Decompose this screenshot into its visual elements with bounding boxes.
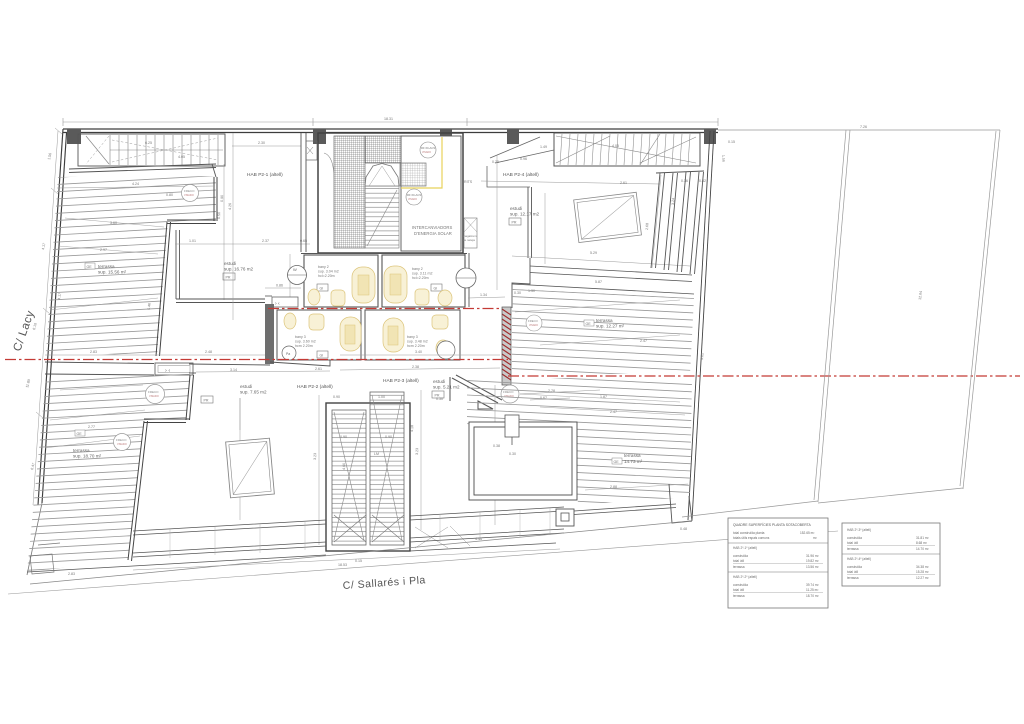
- svg-text:sup. 3.04 m2: sup. 3.04 m2: [318, 270, 339, 274]
- svg-text:2.30: 2.30: [258, 141, 265, 145]
- svg-text:terrassa: terrassa: [733, 594, 745, 598]
- svg-text:31.96 m²: 31.96 m²: [806, 554, 819, 558]
- svg-text:HAB P2-1 (altell): HAB P2-1 (altell): [247, 172, 283, 178]
- svg-text:1.49: 1.49: [540, 145, 547, 149]
- svg-text:8.68 m²: 8.68 m²: [916, 541, 927, 545]
- svg-text:0.50: 0.50: [217, 212, 221, 219]
- svg-text:15.28 m²: 15.28 m²: [916, 570, 929, 574]
- svg-text:hcl=2.20m: hcl=2.20m: [318, 274, 335, 278]
- svg-text:9.62: 9.62: [700, 353, 704, 360]
- svg-text:2.61: 2.61: [620, 181, 627, 185]
- svg-text:PR: PR: [204, 399, 209, 403]
- svg-text:GE: GE: [586, 322, 592, 326]
- svg-text:VISADO: VISADO: [149, 394, 159, 398]
- svg-text:GE: GE: [87, 265, 93, 269]
- svg-text:HAB P2-4 (altell): HAB P2-4 (altell): [503, 172, 539, 178]
- svg-text:5.87: 5.87: [595, 280, 602, 284]
- svg-text:1.00: 1.00: [378, 395, 385, 399]
- svg-text:hcl=2.20m: hcl=2.20m: [412, 276, 429, 280]
- svg-text:4.24: 4.24: [132, 182, 139, 186]
- svg-text:4.44: 4.44: [475, 537, 482, 541]
- svg-text:bany 2: bany 2: [412, 267, 423, 271]
- svg-text:terrassa: terrassa: [847, 576, 859, 580]
- svg-text:FRECO: FRECO: [528, 319, 539, 323]
- svg-text:1.01: 1.01: [189, 239, 196, 243]
- svg-text:HAB P2-2 (altell): HAB P2-2 (altell): [297, 384, 333, 390]
- svg-text:0.48: 0.48: [680, 527, 687, 531]
- svg-text:VISADO: VISADO: [529, 324, 538, 327]
- svg-text:RF 60-ACS: RF 60-ACS: [407, 193, 421, 197]
- svg-text:de neteja: de neteja: [463, 238, 475, 242]
- svg-text:3.40: 3.40: [415, 350, 422, 354]
- svg-text:PR: PR: [512, 221, 517, 225]
- svg-text:2.97: 2.97: [100, 248, 107, 252]
- svg-text:0.67: 0.67: [540, 396, 547, 400]
- svg-text:HAB 2º-2º (altell): HAB 2º-2º (altell): [733, 575, 757, 579]
- svg-text:GI: GI: [320, 287, 324, 291]
- svg-text:0.96: 0.96: [520, 157, 527, 161]
- svg-text:hcm 2.20m: hcm 2.20m: [407, 344, 425, 348]
- svg-text:34.38 m²: 34.38 m²: [916, 565, 929, 569]
- svg-text:3.60: 3.60: [110, 221, 117, 225]
- svg-text:0.15: 0.15: [355, 559, 362, 563]
- svg-text:4.18: 4.18: [410, 425, 414, 432]
- svg-text:2.37: 2.37: [262, 239, 269, 243]
- svg-text:› ‹: › ‹: [275, 301, 280, 307]
- svg-text:0.30: 0.30: [509, 452, 516, 456]
- svg-text:sup. 7.65 m2: sup. 7.65 m2: [240, 390, 267, 395]
- svg-text:HAB 2º-4º (altell): HAB 2º-4º (altell): [847, 557, 871, 561]
- svg-text:sup. 18.70 m²: sup. 18.70 m²: [73, 454, 102, 459]
- svg-text:LM: LM: [374, 452, 379, 456]
- svg-text:bany 3: bany 3: [295, 335, 306, 339]
- svg-text:2.88: 2.88: [610, 485, 617, 489]
- svg-text:VISADO: VISADO: [184, 193, 194, 197]
- svg-text:2.68: 2.68: [645, 223, 649, 230]
- svg-text:RF 60-ACS: RF 60-ACS: [421, 146, 435, 150]
- svg-text:3.23: 3.23: [415, 448, 419, 455]
- svg-text:2.47: 2.47: [610, 410, 617, 414]
- svg-text:1.87: 1.87: [600, 395, 607, 399]
- svg-text:terrassa: terrassa: [596, 318, 613, 323]
- svg-text:1.56: 1.56: [721, 155, 726, 162]
- svg-text:terrassa: terrassa: [624, 453, 641, 458]
- svg-text:4.05: 4.05: [612, 144, 619, 148]
- svg-text:GI: GI: [320, 354, 324, 358]
- svg-text:total útil: total útil: [847, 570, 858, 574]
- svg-text:152.65 m²: 152.65 m²: [800, 531, 814, 535]
- svg-text:m²: m²: [813, 536, 817, 540]
- svg-text:sup. 3.48 m2: sup. 3.48 m2: [407, 340, 428, 344]
- svg-text:construïda: construïda: [733, 583, 748, 587]
- svg-text:4.60: 4.60: [342, 463, 346, 470]
- svg-text:0.30: 0.30: [436, 397, 443, 401]
- svg-text:0.25: 0.25: [492, 160, 499, 164]
- svg-text:14.73 m²: 14.73 m²: [624, 459, 643, 464]
- svg-text:14.70 m²: 14.70 m²: [916, 547, 929, 551]
- svg-text:1.34: 1.34: [480, 293, 487, 297]
- svg-text:2.47: 2.47: [640, 339, 647, 343]
- svg-text:terrassa: terrassa: [98, 264, 115, 269]
- svg-text:estudi: estudi: [433, 379, 445, 384]
- svg-text:W: W: [293, 267, 297, 272]
- svg-text:31.81 m²: 31.81 m²: [916, 536, 929, 540]
- svg-text:11.25 m²: 11.25 m²: [806, 588, 818, 592]
- svg-text:FRECO: FRECO: [116, 438, 127, 442]
- svg-text:5.29: 5.29: [590, 251, 597, 255]
- svg-text:6.25: 6.25: [145, 141, 152, 145]
- svg-text:0.90: 0.90: [385, 435, 392, 439]
- svg-text:sup. 12.17 m2: sup. 12.17 m2: [510, 212, 540, 217]
- svg-text:estudi: estudi: [224, 261, 236, 266]
- svg-text:totals útils espais comuns: totals útils espais comuns: [733, 536, 770, 540]
- svg-text:estudi: estudi: [240, 384, 252, 389]
- svg-text:construïda: construïda: [847, 565, 862, 569]
- svg-text:0.15: 0.15: [728, 140, 735, 144]
- svg-text:18.53: 18.53: [338, 563, 347, 567]
- svg-text:13.56 m²: 13.56 m²: [806, 565, 819, 569]
- svg-text:FRECO: FRECO: [503, 390, 514, 394]
- svg-text:4.05: 4.05: [178, 155, 185, 159]
- svg-text:HAB P2-3 (altell): HAB P2-3 (altell): [383, 378, 419, 384]
- svg-text:GE: GE: [77, 432, 83, 436]
- svg-text:terrassa: terrassa: [847, 547, 859, 551]
- svg-text:0.80: 0.80: [166, 193, 173, 197]
- svg-text:GE: GE: [614, 460, 620, 464]
- svg-text:VISADO: VISADO: [117, 442, 127, 446]
- svg-text:HAB 2º-3º (altell): HAB 2º-3º (altell): [847, 528, 871, 532]
- svg-text:FRECO: FRECO: [184, 189, 195, 193]
- svg-text:1.30: 1.30: [528, 289, 535, 293]
- svg-text:hcm 2.20m: hcm 2.20m: [295, 344, 313, 348]
- svg-text:total útil: total útil: [733, 559, 744, 563]
- svg-text:total construïda planta: total construïda planta: [733, 531, 765, 535]
- svg-text:construïda: construïda: [847, 536, 862, 540]
- svg-text:sup. 5.21 m2: sup. 5.21 m2: [433, 385, 460, 390]
- svg-text:2.48: 2.48: [205, 350, 212, 354]
- svg-text:2.83: 2.83: [68, 572, 75, 576]
- svg-text:› ‹: › ‹: [165, 368, 170, 374]
- svg-text:INTERCANVIADORS: INTERCANVIADORS: [412, 225, 452, 230]
- svg-text:RITS: RITS: [464, 180, 473, 184]
- svg-text:QUADRE SUPERFÍCIES PLANTA SOTA: QUADRE SUPERFÍCIES PLANTA SOTACOBERTA: [733, 523, 811, 527]
- svg-text:HAB 2º-1º (altell): HAB 2º-1º (altell): [733, 546, 757, 550]
- svg-text:0.90: 0.90: [340, 435, 347, 439]
- svg-text:bany 3: bany 3: [407, 335, 418, 339]
- svg-text:39.74 m²: 39.74 m²: [806, 583, 819, 587]
- svg-text:2.61: 2.61: [315, 367, 322, 371]
- svg-text:18.70 m²: 18.70 m²: [806, 594, 819, 598]
- svg-text:3.14: 3.14: [230, 368, 237, 372]
- svg-text:5.46: 5.46: [147, 303, 152, 310]
- svg-text:VISADO: VISADO: [422, 151, 431, 154]
- svg-text:sup. 15.56 m²: sup. 15.56 m²: [98, 270, 127, 275]
- svg-text:4.26: 4.26: [228, 203, 232, 210]
- svg-text:D'ENERGIA SOLAR: D'ENERGIA SOLAR: [414, 231, 452, 236]
- svg-text:estudi: estudi: [510, 206, 522, 211]
- svg-text:bany 2: bany 2: [318, 265, 329, 269]
- svg-text:0.90: 0.90: [220, 195, 224, 202]
- svg-text:construïda: construïda: [733, 554, 748, 558]
- svg-text:3.23: 3.23: [313, 453, 317, 460]
- svg-text:0.90: 0.90: [333, 395, 340, 399]
- svg-text:0.30: 0.30: [514, 291, 521, 295]
- svg-text:total útil: total útil: [847, 541, 858, 545]
- svg-text:terrassa: terrassa: [73, 448, 90, 453]
- svg-text:2.77: 2.77: [88, 425, 95, 429]
- svg-text:terrassa: terrassa: [733, 565, 745, 569]
- svg-text:GI: GI: [434, 287, 438, 291]
- svg-text:2.83: 2.83: [90, 350, 97, 354]
- svg-text:19.82 m²: 19.82 m²: [806, 559, 819, 563]
- svg-text:total útil: total útil: [733, 588, 744, 592]
- svg-text:18.31: 18.31: [384, 117, 393, 121]
- svg-text:sup. 3.11 m2: sup. 3.11 m2: [412, 272, 433, 276]
- svg-text:0.36: 0.36: [681, 179, 688, 183]
- svg-text:sup. 16.76 m2: sup. 16.76 m2: [224, 267, 254, 272]
- svg-text:sup. 3.60 m2: sup. 3.60 m2: [295, 340, 316, 344]
- svg-text:FRECO: FRECO: [148, 390, 159, 394]
- svg-text:2.38: 2.38: [412, 365, 419, 369]
- svg-text:PR: PR: [226, 276, 231, 280]
- svg-text:VISADO: VISADO: [408, 198, 417, 201]
- svg-text:0.38: 0.38: [493, 444, 500, 448]
- svg-text:7.26: 7.26: [860, 125, 867, 129]
- svg-text:sup. 12.27 m²: sup. 12.27 m²: [596, 324, 625, 329]
- svg-text:Pa: Pa: [286, 352, 290, 356]
- svg-text:0.86: 0.86: [276, 284, 283, 288]
- svg-text:12.27 m²: 12.27 m²: [916, 576, 929, 580]
